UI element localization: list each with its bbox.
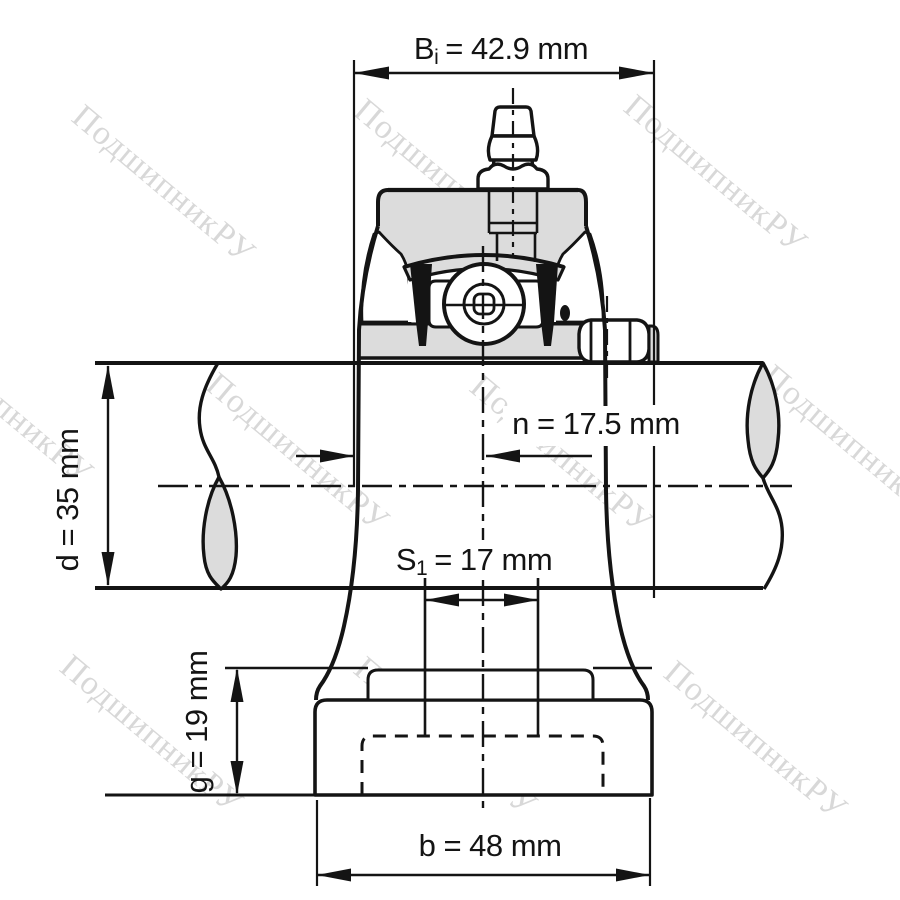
Bi-arrow-left [354,67,389,80]
S1-arrow-left [425,594,459,607]
g-label: g = 19 mm [179,651,214,794]
watermark-text: ПодшипникРУ [463,368,660,542]
S1-arrow-right [504,594,538,607]
b-arrow-left [317,869,351,882]
Bi-label: Bi= 42.9 mm [414,31,588,69]
Bi-arrow-right [619,67,654,80]
bearing-drawing-canvas: ПодшипникРУ ПодшипникРУ ПодшипникРУ Подш… [0,0,900,900]
n-label: n = 17.5 mm [512,406,680,441]
b-arrow-right [616,869,650,882]
b-label: b = 48 mm [419,828,562,863]
watermark-text: ПодшипникРУ [617,88,814,262]
d-arrow-bottom [102,552,115,586]
base-boss [368,670,593,700]
watermark-text: ПодшипникРУ [657,654,854,828]
shaft-break-left-lens [203,477,236,589]
d-label: d = 35 mm [50,429,85,572]
technical-drawing-page: ПодшипникРУ ПодшипникРУ ПодшипникРУ Подш… [0,0,900,900]
watermark-text: ПодшипникРУ [65,98,262,272]
g-arrow-top [231,668,244,702]
d-arrow-top [102,365,115,399]
set-screw-section [560,305,570,321]
n-arrow-right [486,450,520,463]
shaft-break-right-curve [763,478,782,589]
setscrew-collar [579,320,649,362]
